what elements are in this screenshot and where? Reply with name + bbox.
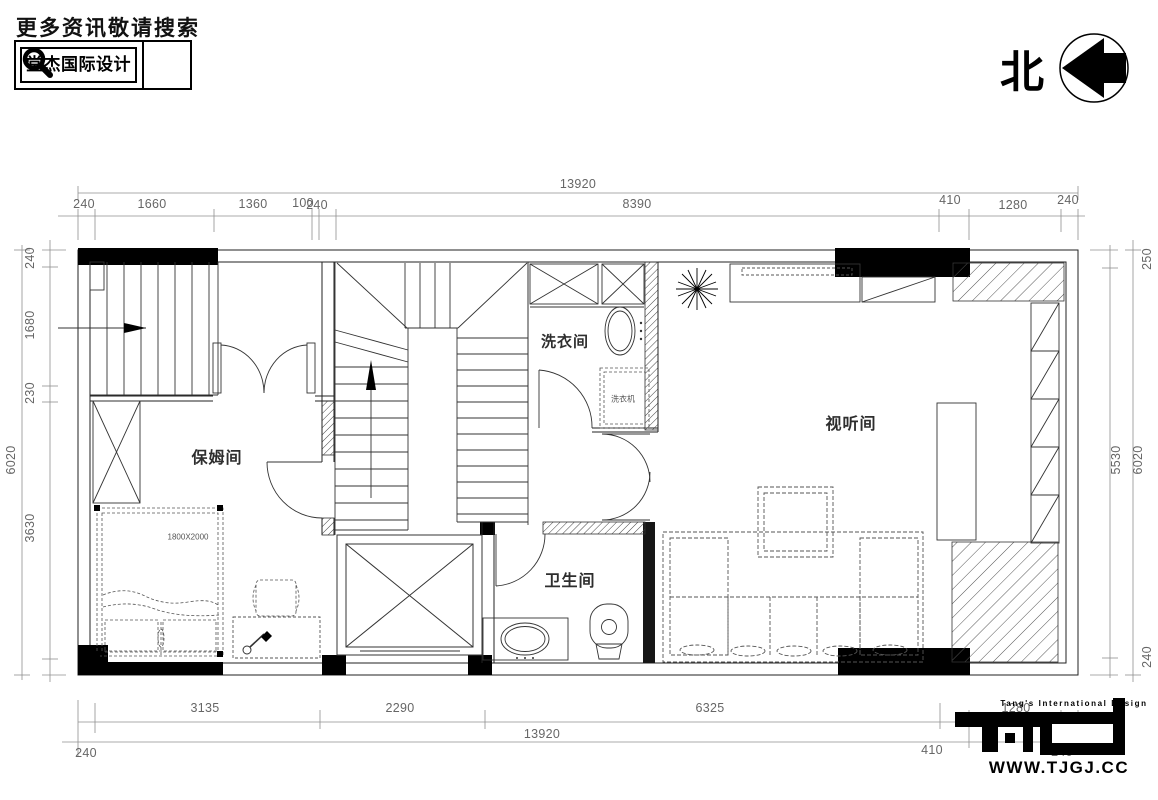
bed — [94, 505, 223, 657]
dim-top-4: 240 — [306, 198, 328, 212]
bed-size-label: 1800X2000 — [168, 533, 209, 542]
main-stairs — [335, 262, 528, 535]
toilet — [590, 604, 628, 659]
north-label: 北 — [1000, 36, 1044, 100]
dim-left-total: 6020 — [4, 445, 18, 474]
room-label-laundry: 洗衣间 — [541, 331, 589, 352]
washer-label: 洗衣机 — [611, 394, 635, 405]
bath-counter-sink — [483, 618, 568, 660]
dim-bottom-4: 410 — [921, 743, 943, 757]
nanny-room — [93, 401, 322, 658]
entry-stairs — [58, 262, 218, 395]
elevator — [337, 535, 482, 655]
dim-left-3: 3630 — [23, 513, 37, 542]
desk-lamp-icon — [243, 631, 272, 654]
dim-left-2: 230 — [23, 382, 37, 404]
floor-plan-page: 更多资讯敬请搜索 堂杰国际设计 北 洗衣间 保姆间 视听间 卫生间 洗衣机 18… — [0, 0, 1158, 800]
wall-hatches — [322, 262, 1064, 662]
dim-bottom-3: 6325 — [695, 701, 724, 715]
dim-top-0: 240 — [73, 197, 95, 211]
coffee-table — [758, 487, 833, 557]
desk — [233, 617, 320, 658]
chair — [253, 580, 299, 616]
north-arrow-icon — [1058, 31, 1132, 105]
direction-arrow-icon — [124, 323, 146, 333]
media-wall — [937, 403, 976, 540]
dim-bottom-2: 2290 — [385, 701, 414, 715]
entry-double-door — [213, 343, 315, 393]
floor-plan-drawing — [0, 0, 1158, 800]
tjid-logo-icon — [948, 696, 1133, 758]
dim-top-7: 1280 — [998, 198, 1027, 212]
hall-double-doors — [602, 434, 650, 520]
bath-door — [496, 534, 545, 586]
dim-bottom-total: 13920 — [524, 727, 560, 741]
laundry-cabinets — [530, 264, 644, 307]
dim-top-5: 8390 — [622, 197, 651, 211]
divider — [142, 42, 144, 88]
dim-left-1: 1680 — [23, 310, 37, 339]
nanny-door — [267, 462, 322, 518]
window-cabinet — [862, 277, 935, 302]
dim-top-total: 13920 — [560, 177, 596, 191]
stair-up-arrow-icon — [366, 360, 376, 390]
dim-bottom-0: 240 — [75, 746, 97, 760]
brand-logo-box: 堂杰国际设计 — [14, 40, 192, 90]
dim-right-2: 240 — [1140, 646, 1154, 668]
laundry-sink — [605, 307, 642, 355]
dim-bottom-1: 3135 — [190, 701, 219, 715]
laundry-door — [539, 370, 592, 428]
dim-top-6: 410 — [939, 193, 961, 207]
sofa — [663, 532, 923, 662]
dim-right-total: 6020 — [1131, 445, 1145, 474]
room-label-bath: 卫生间 — [544, 567, 595, 591]
dim-left-0: 240 — [23, 247, 37, 269]
room-label-av: 视听间 — [825, 410, 876, 434]
dim-top-1: 1660 — [137, 197, 166, 211]
dim-top-2: 1360 — [238, 197, 267, 211]
footer-website: WWW.TJGJ.CC — [960, 758, 1158, 778]
dim-right-0: 250 — [1140, 248, 1154, 270]
side-cabinet-column — [1031, 303, 1059, 543]
magnifier-icon — [16, 42, 58, 82]
bathroom — [483, 534, 628, 660]
wardrobe — [93, 401, 140, 503]
dim-top-8: 240 — [1057, 193, 1079, 207]
plant-icon — [676, 268, 718, 310]
dim-right-1: 5530 — [1109, 445, 1123, 474]
search-prompt: 更多资讯敬请搜索 — [16, 12, 200, 42]
top-ticks — [78, 209, 1078, 240]
room-label-nanny: 保姆间 — [191, 444, 242, 468]
